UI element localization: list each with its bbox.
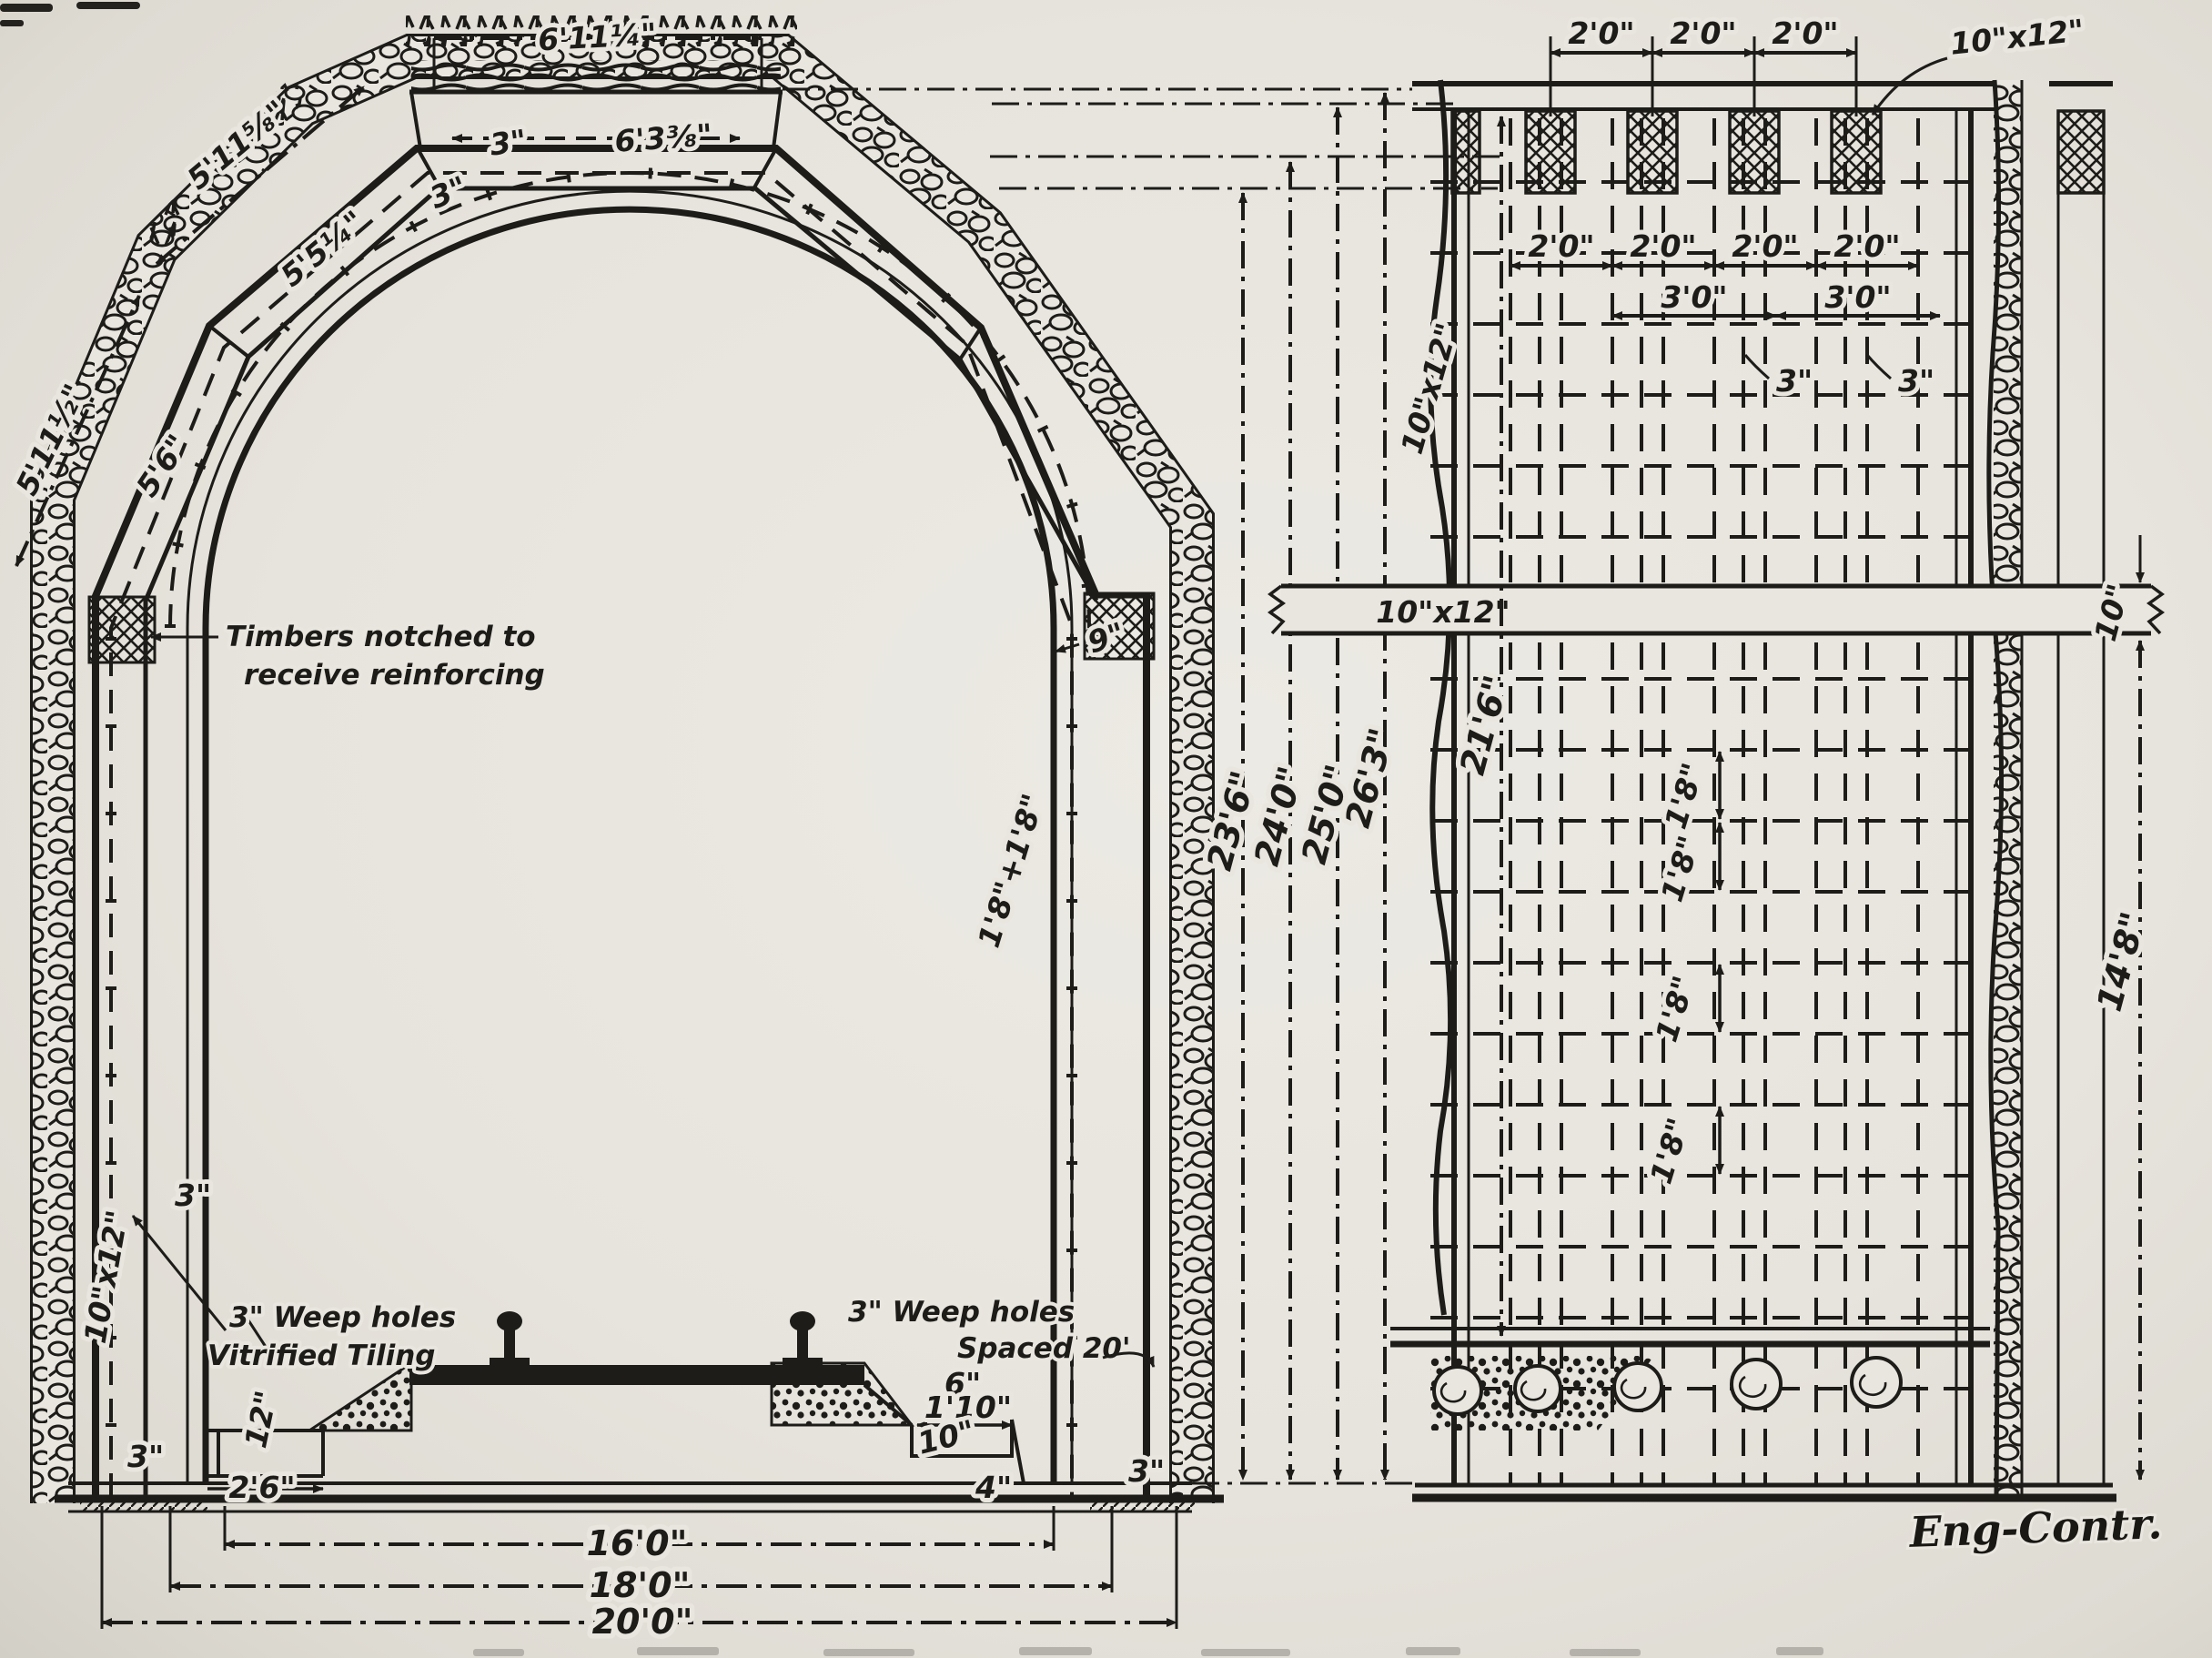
scan-artifacts [0, 2, 140, 26]
elevation-track [1192, 1329, 2116, 1498]
rail-right [783, 1311, 823, 1365]
dim-row3-2: 3'0" [1824, 279, 1891, 315]
dim-width-20: 20'0" [592, 1602, 693, 1642]
dim-crown-t1: 3" [488, 123, 529, 163]
concrete-lining [187, 191, 1072, 1483]
detached-right-post [2049, 84, 2113, 1483]
note-timbers-line1: Timbers notched to [226, 621, 536, 653]
cropped-caption-remnant [473, 1647, 1823, 1656]
dim-row3-1: 3'0" [1661, 279, 1727, 315]
dim-row2-3: 2'0" [1732, 228, 1798, 264]
dim-cap-post: 10"x12" [1948, 12, 2086, 61]
elevation-dimensions: 2'0" 2'0" 2'0" 10"x12" 2'0" 2'0" 2'0" 2'… [1394, 12, 2154, 1480]
dim-bar3-1: 3" [1776, 363, 1813, 399]
dim-drain-depth: 12" [237, 1388, 284, 1451]
dim-crown-inner: 6'3⅜" [613, 116, 713, 158]
dim-top-spacing-1: 2'0" [1568, 15, 1634, 51]
crown-log-cap [409, 60, 783, 148]
dim-arc-upper: 5'5¼" [274, 204, 371, 294]
ballast-right [772, 1363, 912, 1425]
dim-top-spacing-3: 2'0" [1772, 15, 1838, 51]
note-weep-right-line1: 3" Weep holes [848, 1296, 1075, 1329]
dim-row2-1: 2'0" [1528, 228, 1594, 264]
tunnel-timbering-drawing: 6'11¼" 6'3⅜" 3" 3" 5'11⅝" 5'5¼" 5'6" 5'1… [0, 0, 2212, 1658]
wale: 10"x12" 10" [1270, 535, 2162, 645]
dim-wall-post: 10"x12" [77, 1208, 136, 1346]
dim-wall-lagging: 3" [175, 1178, 211, 1213]
excavation-rubble-band [53, 31, 1192, 1503]
dim-rise-pair: 1'8"+1'8" [971, 790, 1051, 952]
dim-height-inner: 21'6" [1452, 671, 1517, 778]
note-timbers-line2: receive reinforcing [244, 659, 545, 692]
note-weep-left-line1: 3" Weep holes [229, 1301, 456, 1334]
dim-width-18: 18'0" [590, 1565, 691, 1605]
dim-row2-4: 2'0" [1833, 228, 1900, 264]
dim-bar3-2: 3" [1898, 363, 1934, 399]
ballast-left [309, 1363, 411, 1431]
scanned-drawing-sheet: 6'11¼" 6'3⅜" 3" 3" 5'11⅝" 5'5¼" 5'6" 5'1… [0, 0, 2212, 1658]
dim-drain-width: 2'6" [228, 1470, 295, 1505]
dim-width-16: 16'0" [587, 1523, 688, 1563]
rail-left [490, 1311, 530, 1365]
note-weep-right-line2: Spaced 20' [957, 1332, 1130, 1365]
dim-footing-right: 3" [1128, 1453, 1165, 1489]
dim-footing-left: 3" [127, 1439, 164, 1474]
cross-section-view [53, 31, 1224, 1511]
cap-beam [1412, 84, 1995, 109]
dim-row2-2: 2'0" [1630, 228, 1696, 264]
note-weep-left-line2: Vitrified Tiling [207, 1340, 436, 1372]
dim-top-spacing-2: 2'0" [1670, 15, 1736, 51]
trackbed [309, 1311, 1024, 1483]
dim-crown-outer: 6'11¼" [537, 16, 657, 58]
dim-gutter-lip: 4" [975, 1470, 1012, 1505]
dim-wale-label: 10"x12" [1376, 594, 1510, 630]
publication-credit: Eng-Contr. [1907, 1499, 2163, 1557]
dim-height-lower: 14'8" [2089, 907, 2154, 1015]
